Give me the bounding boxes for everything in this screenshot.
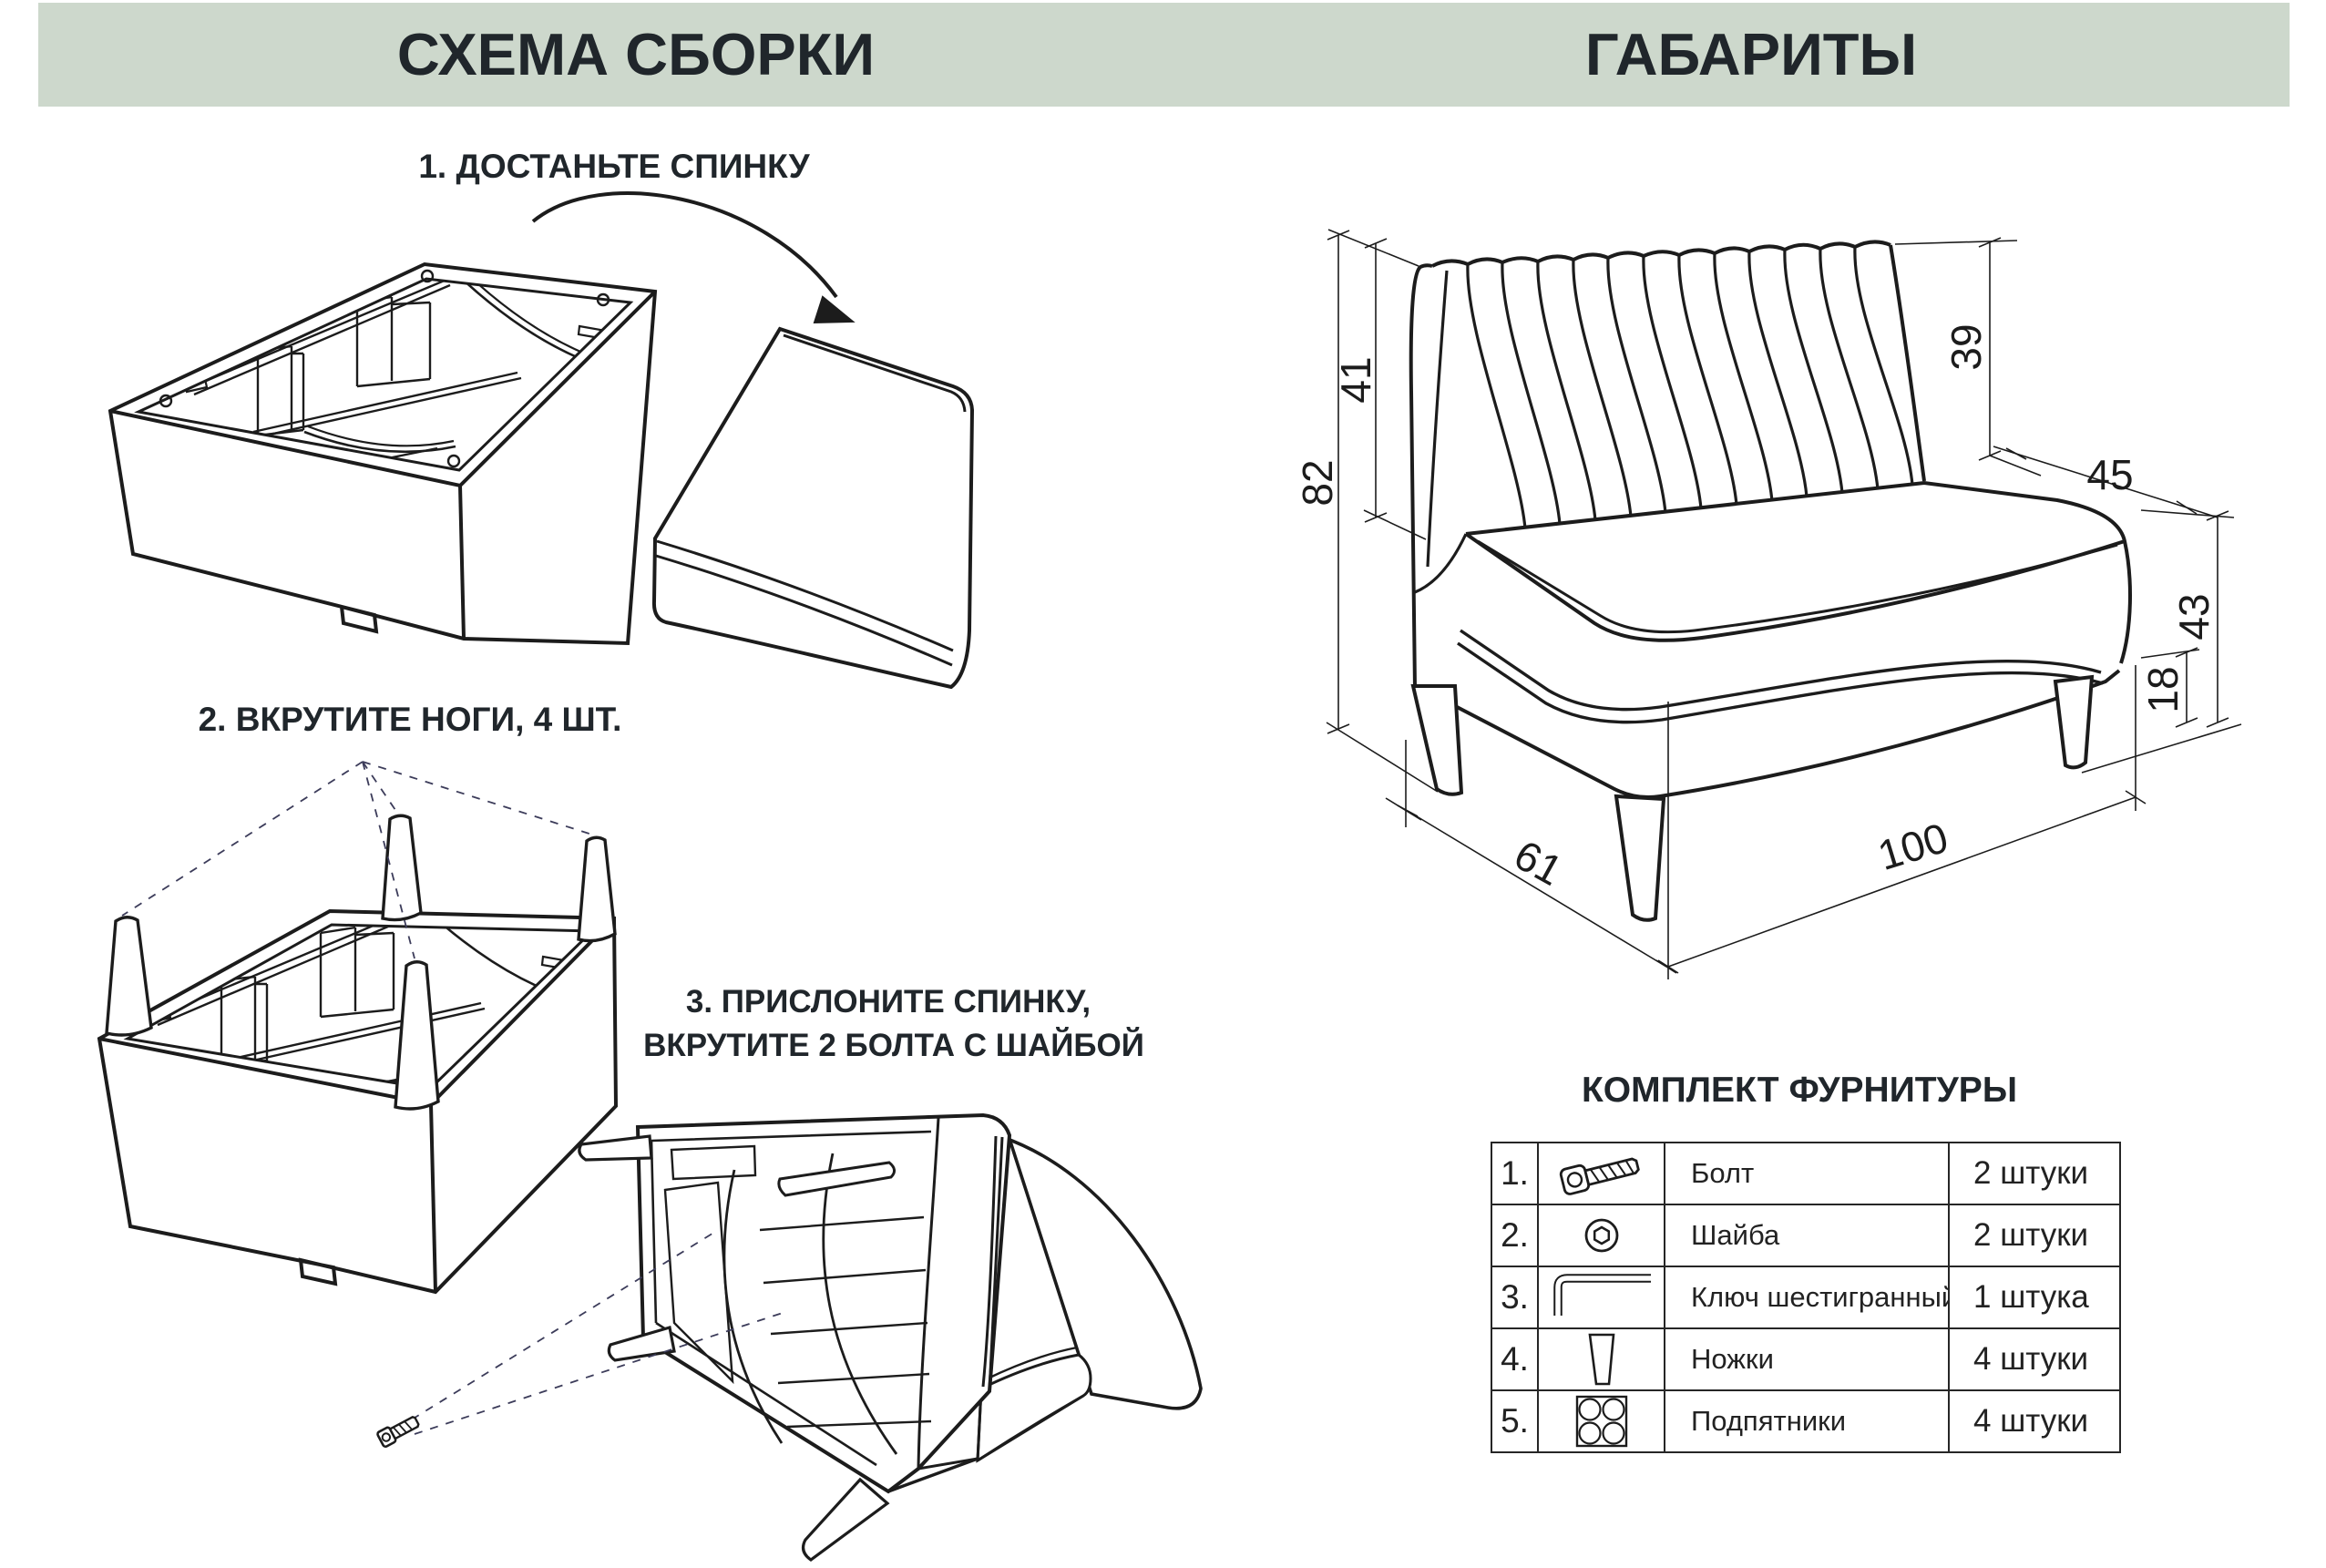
svg-text:82: 82: [1294, 459, 1341, 506]
svg-text:43: 43: [2170, 593, 2218, 640]
svg-text:100: 100: [1872, 814, 1953, 879]
svg-text:41: 41: [1332, 356, 1379, 403]
svg-text:45: 45: [2086, 451, 2133, 498]
svg-text:61: 61: [1507, 831, 1571, 895]
svg-text:39: 39: [1942, 323, 1990, 370]
svg-text:18: 18: [2139, 666, 2187, 712]
